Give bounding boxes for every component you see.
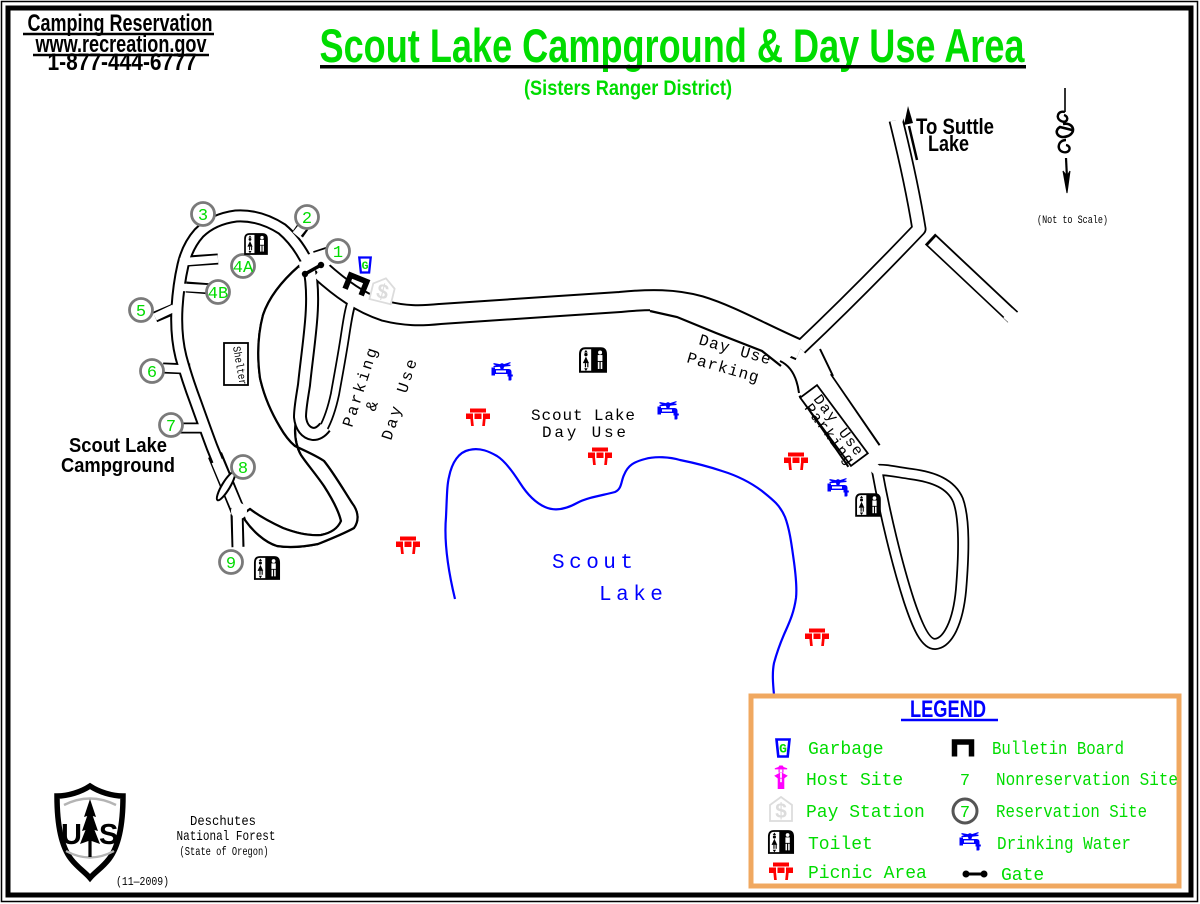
svg-text:4B: 4B bbox=[208, 285, 228, 304]
svg-text:Scout Lake: Scout Lake bbox=[531, 407, 635, 425]
svg-text:5: 5 bbox=[136, 303, 146, 322]
svg-text:(State of Oregon): (State of Oregon) bbox=[180, 846, 269, 859]
svg-text:National Forest: National Forest bbox=[177, 829, 276, 845]
svg-text:9: 9 bbox=[226, 555, 236, 574]
svg-text:Lake: Lake bbox=[928, 131, 969, 156]
svg-text:4A: 4A bbox=[233, 259, 254, 278]
svg-text:Scout Lake: Scout Lake bbox=[69, 435, 167, 457]
svg-text:Day Use: Day Use bbox=[542, 424, 626, 442]
svg-text:&: & bbox=[363, 398, 383, 413]
svg-text:Host Site: Host Site bbox=[806, 771, 903, 791]
svg-text:Pay Station: Pay Station bbox=[806, 803, 925, 823]
svg-text:S: S bbox=[99, 819, 118, 851]
svg-text:1-877-444-6777: 1-877-444-6777 bbox=[48, 49, 197, 76]
svg-text:Picnic Area: Picnic Area bbox=[808, 864, 927, 884]
svg-text:Nonreservation Site: Nonreservation Site bbox=[996, 771, 1178, 791]
svg-text:7: 7 bbox=[166, 418, 176, 437]
svg-text:Bulletin Board: Bulletin Board bbox=[992, 740, 1124, 760]
svg-text:8: 8 bbox=[238, 460, 248, 479]
svg-text:Toilet: Toilet bbox=[808, 835, 873, 855]
svg-text:Day Use: Day Use bbox=[379, 357, 422, 442]
svg-text:Gate: Gate bbox=[1001, 866, 1044, 886]
svg-text:1: 1 bbox=[333, 244, 343, 263]
svg-text:Garbage: Garbage bbox=[808, 740, 884, 760]
svg-text:Reservation Site: Reservation Site bbox=[996, 803, 1147, 823]
svg-text:(Not to Scale): (Not to Scale) bbox=[1037, 215, 1108, 227]
svg-text:2: 2 bbox=[302, 210, 312, 229]
svg-text:Scout Lake Campground & Day Us: Scout Lake Campground & Day Use Area bbox=[320, 19, 1026, 72]
svg-text:(11—2009): (11—2009) bbox=[116, 875, 169, 889]
svg-text:U: U bbox=[61, 819, 82, 851]
svg-text:Campground: Campground bbox=[61, 455, 175, 477]
svg-text:7: 7 bbox=[960, 804, 970, 823]
svg-text:Drinking Water: Drinking Water bbox=[997, 835, 1131, 855]
svg-text:Scout: Scout bbox=[552, 552, 638, 575]
svg-text:6: 6 bbox=[147, 364, 157, 383]
svg-text:7: 7 bbox=[960, 772, 970, 791]
svg-text:Lake: Lake bbox=[599, 584, 667, 607]
svg-text:3: 3 bbox=[198, 207, 208, 226]
svg-text:Deschutes: Deschutes bbox=[190, 814, 256, 830]
svg-text:(Sisters Ranger District): (Sisters Ranger District) bbox=[524, 77, 732, 100]
